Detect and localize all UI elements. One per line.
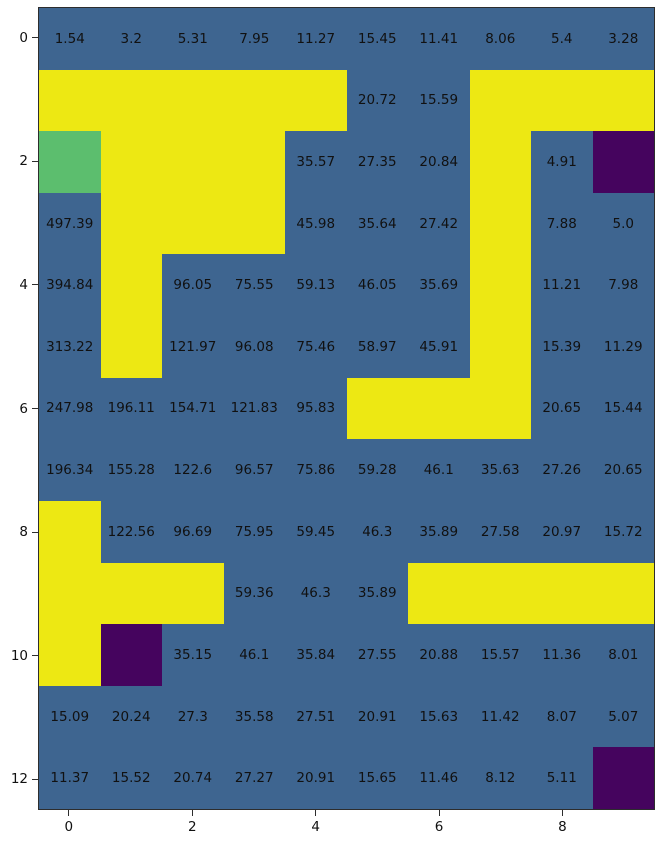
cell-value: 313.22 (46, 339, 93, 355)
heatmap-cell (162, 131, 224, 193)
heatmap-cell: 20.88 (408, 624, 470, 686)
heatmap-cell: 46.1 (408, 439, 470, 501)
heatmap-cell: 122.6 (162, 439, 224, 501)
heatmap-cell (101, 563, 163, 625)
heatmap-cell (470, 193, 532, 255)
y-tick-label: 2 (0, 152, 28, 170)
heatmap-cell: 313.22 (39, 316, 101, 378)
cell-value: 59.36 (235, 585, 274, 601)
heatmap-cell (101, 131, 163, 193)
cell-value: 8.12 (485, 770, 515, 786)
cell-value: 20.74 (173, 770, 212, 786)
cell-value: 27.26 (542, 462, 581, 478)
cell-value: 196.34 (46, 462, 93, 478)
heatmap-cell: 5.11 (531, 747, 593, 809)
cell-value: 15.63 (419, 709, 458, 725)
heatmap-cell: 15.52 (101, 747, 163, 809)
heatmap-cell: 27.58 (470, 501, 532, 563)
heatmap-cell: 27.55 (347, 624, 409, 686)
heatmap-cell: 59.13 (285, 254, 347, 316)
cell-value: 7.98 (608, 277, 638, 293)
cell-value: 15.72 (604, 524, 643, 540)
cell-value: 20.97 (542, 524, 581, 540)
heatmap-cell: 196.11 (101, 378, 163, 440)
x-tick-mark (68, 810, 69, 816)
heatmap-cell: 20.65 (593, 439, 655, 501)
cell-value: 8.07 (547, 709, 577, 725)
cell-value: 45.91 (419, 339, 458, 355)
heatmap-cell: 11.46 (408, 747, 470, 809)
heatmap-cell: 35.89 (347, 563, 409, 625)
cell-value: 96.69 (173, 524, 212, 540)
x-tick-mark (439, 810, 440, 816)
cell-value: 35.89 (358, 585, 397, 601)
cell-value: 121.83 (231, 400, 278, 416)
cell-value: 35.84 (296, 647, 335, 663)
heatmap-cell: 27.35 (347, 131, 409, 193)
heatmap-cell: 11.41 (408, 8, 470, 70)
heatmap-cell: 46.1 (224, 624, 286, 686)
cell-value: 1.54 (55, 31, 85, 47)
cell-value: 96.05 (173, 277, 212, 293)
cell-value: 11.46 (419, 770, 458, 786)
y-tick-mark (32, 655, 38, 656)
cell-value: 59.13 (296, 277, 335, 293)
cell-value: 5.0 (613, 216, 634, 232)
cell-value: 75.95 (235, 524, 274, 540)
heatmap-cell: 5.07 (593, 686, 655, 748)
heatmap-cell: 196.34 (39, 439, 101, 501)
heatmap-cell: 45.91 (408, 316, 470, 378)
heatmap-cell: 20.65 (531, 378, 593, 440)
cell-value: 46.05 (358, 277, 397, 293)
heatmap-cell: 45.98 (285, 193, 347, 255)
heatmap-cell: 15.63 (408, 686, 470, 748)
cell-value: 45.98 (296, 216, 335, 232)
x-tick-label: 2 (174, 818, 210, 836)
cell-value: 5.11 (547, 770, 577, 786)
heatmap-cell (285, 70, 347, 132)
cell-value: 20.91 (358, 709, 397, 725)
heatmap-cell: 27.26 (531, 439, 593, 501)
cell-value: 27.27 (235, 770, 274, 786)
heatmap-cell: 35.57 (285, 131, 347, 193)
cell-value: 11.41 (419, 31, 458, 47)
cell-value: 15.44 (604, 400, 643, 416)
heatmap-cell: 15.45 (347, 8, 409, 70)
heatmap-cell: 27.51 (285, 686, 347, 748)
cell-value: 3.2 (121, 31, 142, 47)
cell-value: 35.69 (419, 277, 458, 293)
heatmap-cell: 15.09 (39, 686, 101, 748)
heatmap-cell: 20.72 (347, 70, 409, 132)
heatmap-cell (39, 70, 101, 132)
cell-value: 58.97 (358, 339, 397, 355)
y-tick-label: 8 (0, 523, 28, 541)
heatmap-cell (162, 70, 224, 132)
heatmap-cell (101, 254, 163, 316)
cell-value: 35.58 (235, 709, 274, 725)
cell-value: 4.91 (547, 154, 577, 170)
heatmap-cell: 155.28 (101, 439, 163, 501)
cell-value: 5.31 (178, 31, 208, 47)
cell-value: 11.42 (481, 709, 520, 725)
figure: 1.543.25.317.9511.2715.4511.418.065.43.2… (0, 0, 661, 843)
cell-value: 35.57 (296, 154, 335, 170)
cell-value: 11.36 (542, 647, 581, 663)
cell-value: 8.06 (485, 31, 515, 47)
heatmap-cell: 35.84 (285, 624, 347, 686)
heatmap-cell: 11.42 (470, 686, 532, 748)
cell-value: 46.1 (239, 647, 269, 663)
cell-value: 5.07 (608, 709, 638, 725)
cell-value: 3.28 (608, 31, 638, 47)
cell-value: 155.28 (108, 462, 155, 478)
heatmap-cell: 75.95 (224, 501, 286, 563)
cell-value: 15.39 (542, 339, 581, 355)
y-tick-mark (32, 408, 38, 409)
cell-value: 20.72 (358, 92, 397, 108)
heatmap-cell: 15.59 (408, 70, 470, 132)
heatmap-cell: 59.45 (285, 501, 347, 563)
heatmap-cell: 5.4 (531, 8, 593, 70)
heatmap-cell (39, 563, 101, 625)
cell-value: 20.65 (542, 400, 581, 416)
heatmap-cell (162, 193, 224, 255)
heatmap-cell: 20.74 (162, 747, 224, 809)
heatmap-cell: 11.29 (593, 316, 655, 378)
heatmap-cell: 35.63 (470, 439, 532, 501)
heatmap-cell: 3.28 (593, 8, 655, 70)
cell-value: 46.3 (362, 524, 392, 540)
cell-value: 11.29 (604, 339, 643, 355)
x-tick-label: 6 (421, 818, 457, 836)
heatmap-cell (593, 563, 655, 625)
heatmap-cell (39, 131, 101, 193)
heatmap-cell (224, 131, 286, 193)
heatmap-cell: 15.44 (593, 378, 655, 440)
cell-value: 7.88 (547, 216, 577, 232)
heatmap-cell: 95.83 (285, 378, 347, 440)
cell-value: 59.28 (358, 462, 397, 478)
heatmap-cell: 7.95 (224, 8, 286, 70)
heatmap-cell: 96.69 (162, 501, 224, 563)
heatmap-cell: 394.84 (39, 254, 101, 316)
cell-value: 7.95 (239, 31, 269, 47)
cell-value: 247.98 (46, 400, 93, 416)
cell-value: 75.86 (296, 462, 335, 478)
heatmap-cell (101, 316, 163, 378)
heatmap-cell: 1.54 (39, 8, 101, 70)
heatmap-cell: 59.28 (347, 439, 409, 501)
heatmap-cell: 46.3 (347, 501, 409, 563)
x-tick-label: 8 (544, 818, 580, 836)
heatmap-cell: 247.98 (39, 378, 101, 440)
heatmap-cell: 46.05 (347, 254, 409, 316)
heatmap-cell: 11.27 (285, 8, 347, 70)
heatmap-cell (470, 563, 532, 625)
cell-value: 27.42 (419, 216, 458, 232)
heatmap-cell (39, 624, 101, 686)
x-tick-mark (315, 810, 316, 816)
heatmap-cell: 15.65 (347, 747, 409, 809)
heatmap-cell: 154.71 (162, 378, 224, 440)
heatmap-cell: 75.55 (224, 254, 286, 316)
heatmap-cell (593, 131, 655, 193)
cell-value: 35.64 (358, 216, 397, 232)
heatmap-cell: 8.12 (470, 747, 532, 809)
cell-value: 35.89 (419, 524, 458, 540)
heatmap-cell: 8.01 (593, 624, 655, 686)
cell-value: 46.1 (424, 462, 454, 478)
cell-value: 59.45 (296, 524, 335, 540)
y-tick-mark (32, 37, 38, 38)
y-tick-label: 4 (0, 276, 28, 294)
cell-value: 35.15 (173, 647, 212, 663)
heatmap-cell (101, 70, 163, 132)
cell-value: 497.39 (46, 216, 93, 232)
cell-value: 27.3 (178, 709, 208, 725)
cell-value: 122.56 (108, 524, 155, 540)
y-tick-label: 10 (0, 647, 28, 665)
heatmap-cell: 11.37 (39, 747, 101, 809)
heatmap-cell: 7.98 (593, 254, 655, 316)
heatmap-cell: 7.88 (531, 193, 593, 255)
cell-value: 35.63 (481, 462, 520, 478)
heatmap-cell: 35.58 (224, 686, 286, 748)
cell-value: 15.52 (112, 770, 151, 786)
heatmap-cell: 497.39 (39, 193, 101, 255)
cell-value: 15.09 (50, 709, 89, 725)
heatmap-cell: 35.69 (408, 254, 470, 316)
heatmap-cell: 20.24 (101, 686, 163, 748)
heatmap-cell: 59.36 (224, 563, 286, 625)
heatmap-cell: 20.84 (408, 131, 470, 193)
cell-value: 15.45 (358, 31, 397, 47)
heatmap-cell: 122.56 (101, 501, 163, 563)
x-tick-mark (192, 810, 193, 816)
cell-value: 27.58 (481, 524, 520, 540)
x-tick-mark (562, 810, 563, 816)
heatmap-cell: 58.97 (347, 316, 409, 378)
heatmap-plot: 1.543.25.317.9511.2715.4511.418.065.43.2… (38, 7, 655, 810)
y-tick-mark (32, 284, 38, 285)
heatmap-cell (224, 70, 286, 132)
cell-value: 96.57 (235, 462, 274, 478)
cell-value: 15.59 (419, 92, 458, 108)
heatmap-cell (470, 70, 532, 132)
cell-value: 27.35 (358, 154, 397, 170)
heatmap-cell (101, 193, 163, 255)
cell-value: 394.84 (46, 277, 93, 293)
y-tick-mark (32, 532, 38, 533)
heatmap-cell: 20.97 (531, 501, 593, 563)
heatmap-cell (470, 378, 532, 440)
heatmap-cell (39, 501, 101, 563)
heatmap-cell (593, 70, 655, 132)
heatmap-cell: 75.86 (285, 439, 347, 501)
heatmap-cell: 11.36 (531, 624, 593, 686)
cell-value: 15.65 (358, 770, 397, 786)
x-tick-label: 0 (51, 818, 87, 836)
x-tick-label: 4 (298, 818, 334, 836)
cell-value: 5.4 (551, 31, 572, 47)
cell-value: 11.37 (50, 770, 89, 786)
heatmap-cell: 46.3 (285, 563, 347, 625)
heatmap-cell: 96.05 (162, 254, 224, 316)
heatmap-cell: 75.46 (285, 316, 347, 378)
heatmap-cell: 35.64 (347, 193, 409, 255)
heatmap-cell (224, 193, 286, 255)
cell-value: 27.55 (358, 647, 397, 663)
heatmap-cell: 15.39 (531, 316, 593, 378)
y-tick-label: 0 (0, 29, 28, 47)
cell-value: 20.24 (112, 709, 151, 725)
heatmap-cell (162, 563, 224, 625)
heatmap-cell: 35.15 (162, 624, 224, 686)
cell-value: 75.55 (235, 277, 274, 293)
y-tick-mark (32, 161, 38, 162)
heatmap-cell: 8.06 (470, 8, 532, 70)
cell-value: 20.91 (296, 770, 335, 786)
cell-value: 75.46 (296, 339, 335, 355)
cell-value: 154.71 (169, 400, 216, 416)
cell-value: 121.97 (169, 339, 216, 355)
heatmap-cell: 4.91 (531, 131, 593, 193)
y-tick-mark (32, 779, 38, 780)
heatmap-cell: 5.0 (593, 193, 655, 255)
heatmap-cell: 11.21 (531, 254, 593, 316)
heatmap-cell: 15.72 (593, 501, 655, 563)
heatmap-cell (531, 563, 593, 625)
heatmap-cell (531, 70, 593, 132)
heatmap-cell: 27.27 (224, 747, 286, 809)
heatmap-cell: 20.91 (285, 747, 347, 809)
cell-value: 95.83 (296, 400, 335, 416)
cell-value: 8.01 (608, 647, 638, 663)
heatmap-cell: 121.83 (224, 378, 286, 440)
cell-value: 46.3 (301, 585, 331, 601)
y-tick-label: 6 (0, 400, 28, 418)
cell-value: 96.08 (235, 339, 274, 355)
heatmap-cell: 35.89 (408, 501, 470, 563)
heatmap-cell: 27.42 (408, 193, 470, 255)
cell-value: 20.88 (419, 647, 458, 663)
heatmap-cell (101, 624, 163, 686)
heatmap-cell: 5.31 (162, 8, 224, 70)
heatmap-cell: 96.08 (224, 316, 286, 378)
cell-value: 11.27 (296, 31, 335, 47)
heatmap-cell: 15.57 (470, 624, 532, 686)
heatmap-cell (470, 254, 532, 316)
heatmap-cell (470, 316, 532, 378)
cell-value: 20.65 (604, 462, 643, 478)
y-tick-label: 12 (0, 770, 28, 788)
heatmap-cell: 3.2 (101, 8, 163, 70)
heatmap-cell: 20.91 (347, 686, 409, 748)
heatmap-cell (470, 131, 532, 193)
heatmap-cell (408, 378, 470, 440)
heatmap-cell: 8.07 (531, 686, 593, 748)
heatmap-cell (593, 747, 655, 809)
heatmap-cell (347, 378, 409, 440)
cell-value: 27.51 (296, 709, 335, 725)
cell-value: 20.84 (419, 154, 458, 170)
heatmap-cell: 96.57 (224, 439, 286, 501)
cell-value: 15.57 (481, 647, 520, 663)
heatmap-cell: 27.3 (162, 686, 224, 748)
cell-value: 122.6 (173, 462, 212, 478)
heatmap-cell: 121.97 (162, 316, 224, 378)
cell-value: 196.11 (108, 400, 155, 416)
heatmap-cell (408, 563, 470, 625)
cell-value: 11.21 (542, 277, 581, 293)
